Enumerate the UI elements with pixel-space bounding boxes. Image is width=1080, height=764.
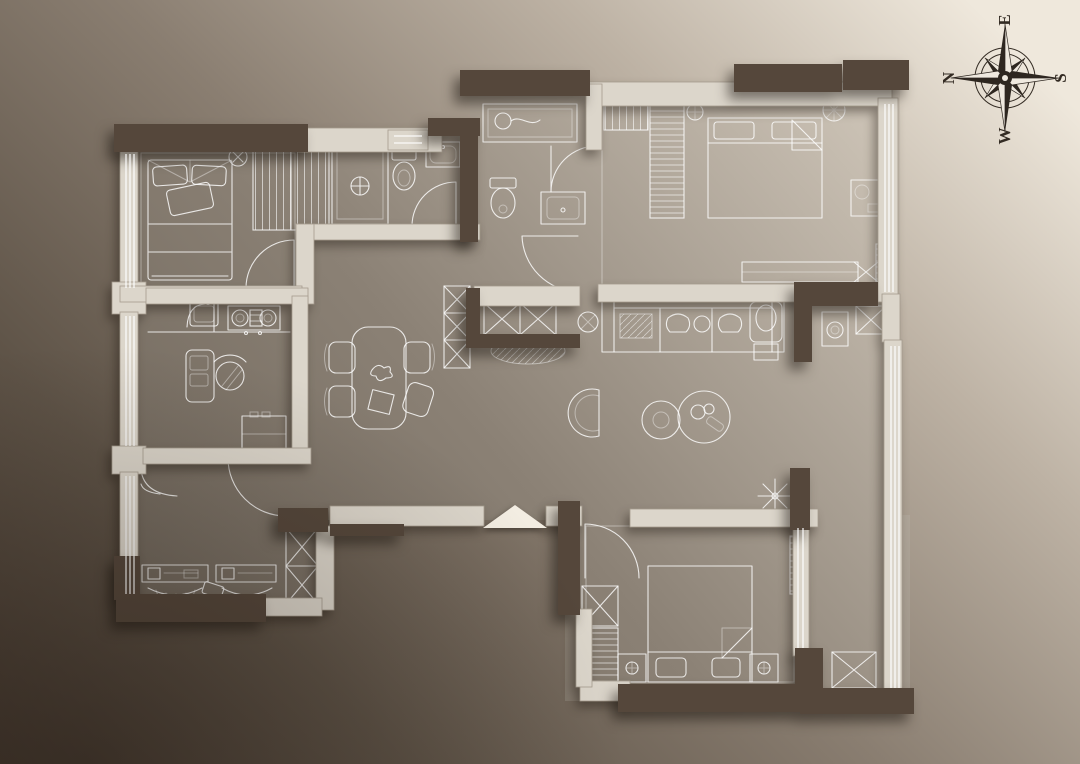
compass-rose: E N S W (935, 8, 1075, 148)
wardrobe-hanging (650, 102, 684, 218)
grill (250, 310, 262, 326)
compass-label-west: W (995, 128, 1015, 145)
compass-label-north: N (939, 72, 959, 84)
floor-plan-svg (0, 0, 1080, 764)
floor-plan-render: E N S W (0, 0, 1080, 764)
compass-label-south: S (1051, 73, 1071, 82)
plant-snowflake (758, 479, 792, 513)
seat-cushion (620, 314, 652, 338)
compass-label-east: E (995, 14, 1015, 25)
